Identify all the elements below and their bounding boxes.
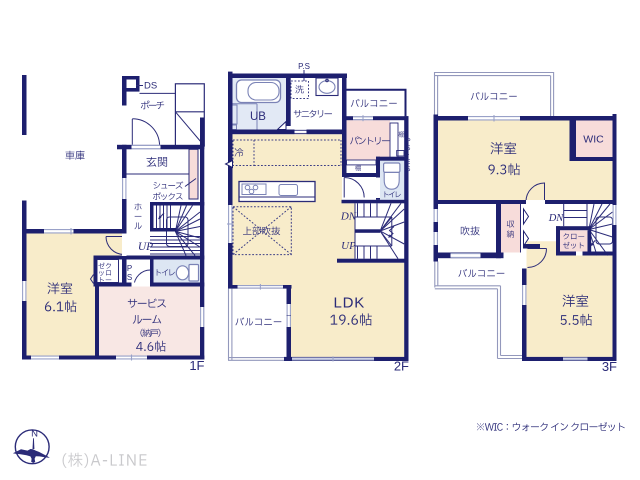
svg-text:P.S: P.S [298, 62, 310, 71]
svg-text:N: N [31, 429, 38, 440]
svg-text:DS: DS [144, 81, 157, 92]
svg-text:S: S [127, 273, 132, 282]
svg-text:DN: DN [340, 211, 357, 223]
svg-text:P: P [127, 264, 132, 273]
svg-text:1F: 1F [189, 358, 204, 373]
svg-text:UP: UP [341, 240, 356, 252]
svg-text:LDK: LDK [334, 295, 366, 312]
svg-text:UP: UP [138, 241, 153, 253]
svg-text:2F: 2F [394, 359, 409, 374]
svg-text:WIC: WIC [583, 134, 604, 146]
svg-text:DN: DN [548, 213, 565, 224]
svg-text:UB: UB [250, 111, 266, 123]
svg-text:3F: 3F [602, 359, 617, 374]
